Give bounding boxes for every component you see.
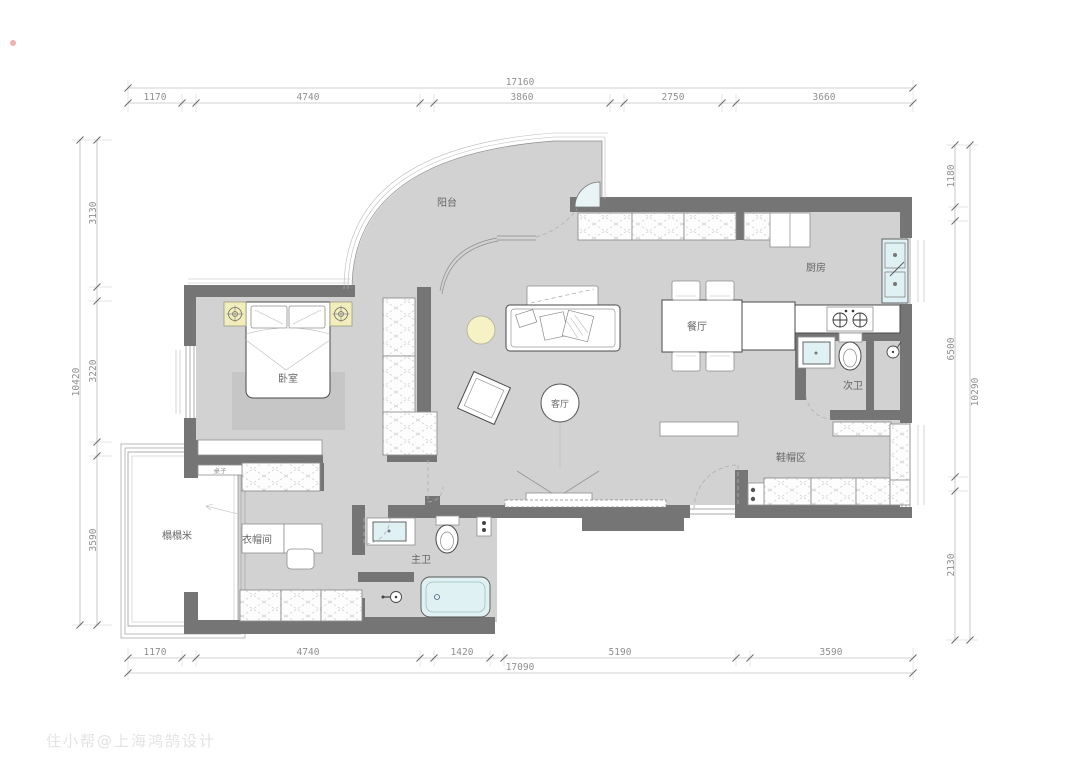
dim-top-3: 3860 (511, 92, 534, 103)
dim-top-4: 2750 (662, 92, 685, 103)
dim-bottom-1: 1170 (144, 647, 167, 658)
dim-bottom-5: 3590 (820, 647, 843, 658)
room-label-cloakroom: 衣帽间 (242, 533, 272, 546)
dim-bottom-4: 5190 (609, 647, 632, 658)
dimension-bottom: 1170 4740 1420 5190 3590 17090 (125, 647, 917, 680)
gas-stove (827, 307, 873, 331)
dim-left-3: 3590 (88, 528, 99, 551)
dim-right-1: 1180 (946, 164, 957, 187)
room-label-second-bath: 次卫 (843, 379, 863, 392)
hallway-bench (660, 422, 738, 436)
fridge (770, 213, 810, 247)
bathroom-sink (798, 337, 835, 368)
nightstand-left (224, 302, 246, 326)
round-rug (467, 316, 495, 344)
room-label-kitchen: 厨房 (806, 261, 826, 274)
watermark-dot (10, 40, 16, 46)
dim-bottom-2: 4740 (297, 647, 320, 658)
dim-right-total: 10290 (970, 377, 981, 406)
nightstand-right (330, 302, 352, 326)
dim-left-2: 3220 (88, 359, 99, 382)
watermark-text: 住小帮@上海鸿鹄设计 (46, 732, 216, 750)
island-counter (742, 302, 795, 350)
desk-chair (287, 549, 314, 569)
dim-top-total: 17160 (506, 77, 535, 88)
room-label-dining: 餐厅 (687, 320, 707, 333)
room-label-living: 客厅 (551, 398, 569, 410)
room-label-shoe-area: 鞋帽区 (776, 451, 806, 464)
toilet-icon (436, 516, 459, 553)
shoe-bench-unit (748, 483, 764, 505)
dim-top-1: 1170 (144, 92, 167, 103)
dimension-left: 3130 3220 3590 10420 (71, 137, 112, 629)
dimension-top: 17160 1170 4740 3860 2750 3660 (125, 77, 917, 112)
dim-right-3: 2130 (946, 553, 957, 576)
dim-left-total: 10420 (71, 367, 82, 396)
bathtub (421, 577, 490, 617)
dimension-right: 1180 6500 2130 10290 (946, 142, 981, 644)
room-label-master-bath: 主卫 (411, 554, 431, 566)
floor-plan-drawing: 阳台 卧室 客厅 餐厅 厨房 次卫 鞋帽区 榻榻米 衣帽间 主卫 桌子 1716… (0, 0, 1080, 764)
dim-left-1: 3130 (88, 201, 99, 224)
desk-shelf-label: 桌子 (214, 466, 228, 475)
room-label-balcony: 阳台 (437, 196, 457, 209)
kitchen-sink (882, 239, 908, 303)
corner-valve-unit (477, 517, 491, 536)
bedroom-bench (198, 440, 322, 455)
dim-top-5: 3660 (813, 92, 836, 103)
dim-bottom-3: 1420 (451, 647, 474, 658)
room-label-bedroom: 卧室 (278, 372, 298, 385)
dim-bottom-total: 17090 (506, 662, 535, 673)
dim-right-2: 6500 (946, 337, 957, 360)
floor-plan-page: 阳台 卧室 客厅 餐厅 厨房 次卫 鞋帽区 榻榻米 衣帽间 主卫 桌子 1716… (0, 0, 1080, 764)
dim-top-2: 4740 (297, 92, 320, 103)
toilet-icon (839, 333, 862, 370)
room-label-tatami: 榻榻米 (162, 529, 192, 542)
bathroom-sink (367, 518, 415, 545)
